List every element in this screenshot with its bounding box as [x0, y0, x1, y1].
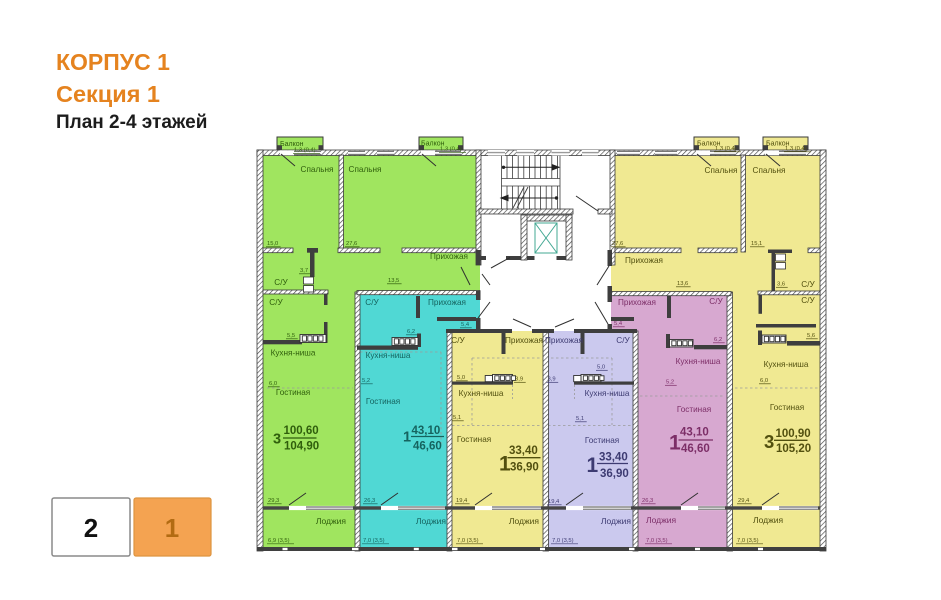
svg-text:36,90: 36,90: [510, 462, 539, 474]
svg-text:Прихожая: Прихожая: [625, 256, 663, 265]
svg-text:КОРПУС 1: КОРПУС 1: [56, 49, 170, 75]
svg-text:5,6: 5,6: [807, 333, 815, 339]
svg-text:Секция 1: Секция 1: [56, 81, 160, 107]
svg-text:26,3: 26,3: [364, 498, 375, 504]
svg-text:1: 1: [165, 513, 179, 543]
svg-text:С/У: С/У: [709, 297, 723, 306]
svg-text:Гостиная: Гостиная: [366, 397, 400, 406]
svg-text:Гостиная: Гостиная: [276, 388, 310, 397]
svg-text:104,90: 104,90: [284, 441, 319, 453]
svg-text:Лоджия: Лоджия: [416, 516, 447, 526]
svg-text:13,5: 13,5: [388, 278, 399, 284]
svg-text:5,5: 5,5: [287, 333, 295, 339]
svg-text:7,0 (3,5): 7,0 (3,5): [363, 538, 385, 544]
svg-text:1,3 (0,4): 1,3 (0,4): [440, 147, 462, 153]
svg-text:6,0: 6,0: [760, 378, 768, 384]
svg-text:Спальня: Спальня: [705, 166, 738, 175]
svg-text:15,1: 15,1: [751, 241, 762, 247]
svg-text:С/У: С/У: [801, 296, 815, 305]
svg-text:Спальня: Спальня: [753, 166, 786, 175]
svg-text:1,3 (0,4): 1,3 (0,4): [785, 146, 807, 152]
svg-text:5,4: 5,4: [461, 322, 470, 328]
svg-text:7,0 (3,5): 7,0 (3,5): [552, 538, 574, 544]
svg-text:Кухня-ниша: Кухня-ниша: [271, 349, 316, 358]
svg-text:46,60: 46,60: [681, 443, 710, 455]
svg-text:5,0: 5,0: [597, 365, 605, 371]
svg-text:100,60: 100,60: [284, 425, 319, 437]
svg-text:6,9 (3,5): 6,9 (3,5): [268, 538, 290, 544]
svg-text:Гостиная: Гостиная: [770, 403, 804, 412]
svg-text:2: 2: [84, 513, 98, 543]
svg-text:С/У: С/У: [365, 298, 379, 307]
svg-text:Лоджия: Лоджия: [509, 516, 540, 526]
svg-text:7,0 (3,5): 7,0 (3,5): [737, 538, 759, 544]
svg-text:С/У: С/У: [269, 298, 283, 307]
svg-text:Прихожая: Прихожая: [545, 336, 583, 345]
svg-text:Лоджия: Лоджия: [646, 515, 677, 525]
svg-text:6,0: 6,0: [269, 381, 277, 387]
svg-text:Кухня-ниша: Кухня-ниша: [764, 360, 809, 369]
svg-text:27,6: 27,6: [612, 241, 623, 247]
svg-text:Прихожая: Прихожая: [618, 298, 656, 307]
svg-text:43,10: 43,10: [680, 427, 709, 439]
svg-text:29,3: 29,3: [268, 498, 279, 504]
svg-text:13,6: 13,6: [677, 281, 688, 287]
svg-text:3,9: 3,9: [515, 377, 523, 383]
svg-text:1: 1: [403, 430, 411, 446]
svg-text:15,0: 15,0: [267, 241, 278, 247]
svg-text:7,0 (3,5): 7,0 (3,5): [646, 538, 668, 544]
svg-text:Кухня-ниша: Кухня-ниша: [585, 389, 630, 398]
svg-text:5,0: 5,0: [457, 375, 465, 381]
svg-text:5,2: 5,2: [362, 378, 370, 384]
svg-text:Лоджия: Лоджия: [316, 516, 347, 526]
svg-text:33,40: 33,40: [509, 445, 538, 457]
svg-text:19,4: 19,4: [456, 498, 468, 504]
svg-text:19,4: 19,4: [548, 499, 560, 505]
svg-text:Гостиная: Гостиная: [457, 435, 491, 444]
svg-text:Прихожая: Прихожая: [430, 252, 468, 261]
svg-text:46,60: 46,60: [413, 441, 442, 453]
svg-text:6,2: 6,2: [714, 337, 722, 343]
svg-text:27,6: 27,6: [346, 241, 357, 247]
svg-text:3: 3: [273, 432, 281, 448]
svg-text:100,90: 100,90: [776, 428, 811, 440]
svg-text:5,2: 5,2: [666, 380, 674, 386]
svg-text:3,7: 3,7: [300, 268, 308, 274]
svg-text:С/У: С/У: [274, 278, 288, 287]
svg-text:Лоджия: Лоджия: [601, 516, 632, 526]
svg-text:26,3: 26,3: [642, 498, 653, 504]
svg-text:5,1: 5,1: [576, 416, 584, 422]
svg-text:3: 3: [764, 431, 774, 452]
svg-text:С/У: С/У: [801, 280, 815, 289]
svg-text:Кухня-ниша: Кухня-ниша: [366, 351, 411, 360]
svg-text:Гостиная: Гостиная: [677, 405, 711, 414]
svg-text:Прихожая: Прихожая: [428, 298, 466, 307]
svg-text:3,9: 3,9: [548, 377, 556, 383]
svg-text:43,10: 43,10: [412, 425, 441, 437]
svg-text:С/У: С/У: [616, 336, 630, 345]
svg-text:33,40: 33,40: [599, 452, 628, 464]
svg-text:Прихожая: Прихожая: [505, 336, 543, 345]
svg-text:С/У: С/У: [451, 336, 465, 345]
svg-text:3,6: 3,6: [777, 282, 785, 288]
svg-text:29,4: 29,4: [738, 498, 750, 504]
svg-text:5,1: 5,1: [453, 415, 461, 421]
svg-text:36,90: 36,90: [600, 468, 629, 480]
svg-text:План 2-4 этажей: План 2-4 этажей: [56, 112, 207, 133]
svg-text:Гостиная: Гостиная: [585, 436, 619, 445]
svg-text:7,0 (3,5): 7,0 (3,5): [457, 538, 479, 544]
svg-text:6,2: 6,2: [407, 329, 415, 335]
svg-text:5,4: 5,4: [614, 321, 623, 327]
svg-text:Кухня-ниша: Кухня-ниша: [459, 389, 504, 398]
svg-text:1: 1: [587, 454, 599, 477]
svg-text:Лоджия: Лоджия: [753, 515, 784, 525]
svg-text:Кухня-ниша: Кухня-ниша: [676, 357, 721, 366]
svg-text:1,3 (0,4): 1,3 (0,4): [294, 148, 316, 154]
svg-text:1,3 (0,4): 1,3 (0,4): [715, 146, 737, 152]
svg-text:105,20: 105,20: [776, 443, 811, 455]
svg-text:Спальня: Спальня: [301, 165, 334, 174]
svg-text:Спальня: Спальня: [349, 165, 382, 174]
